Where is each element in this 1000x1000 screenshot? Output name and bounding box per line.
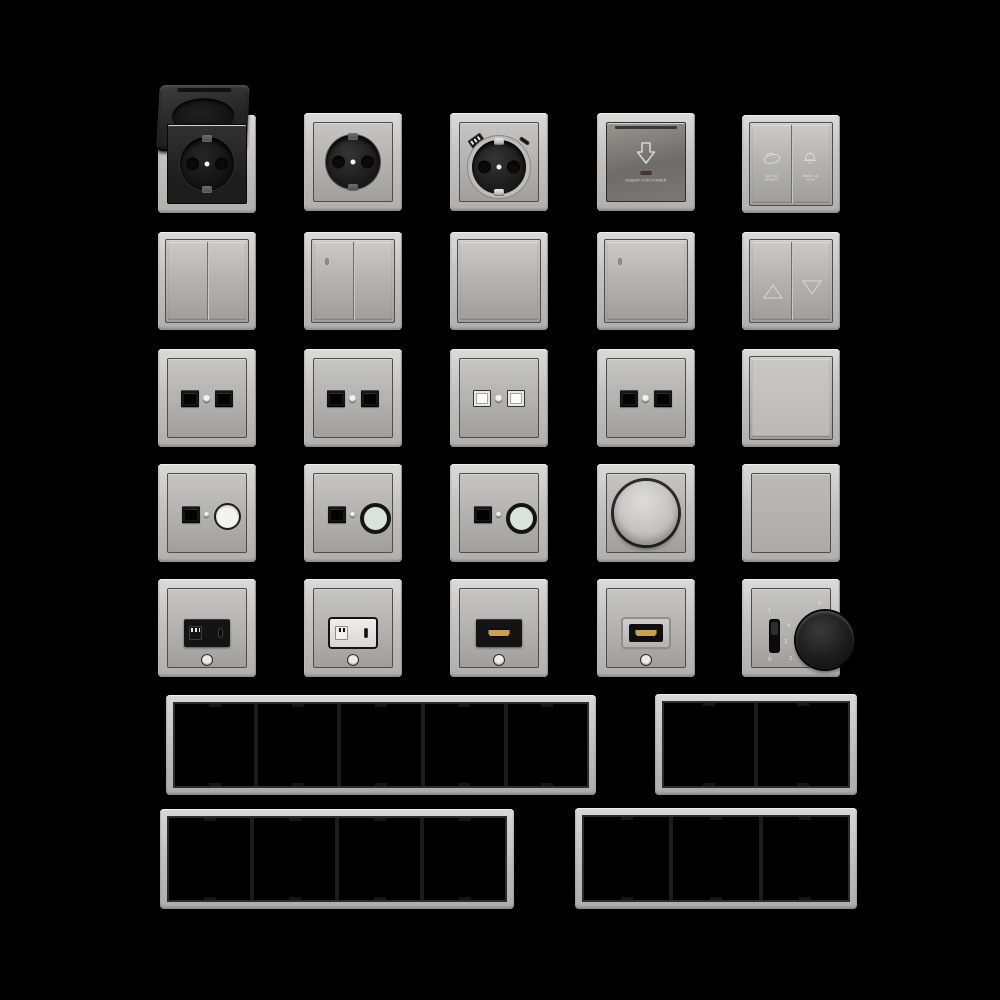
hotel-left-label: Do not disturb [759,174,783,181]
tile-socket-schuko-usb[interactable] [450,113,548,211]
rj45-port[interactable] [654,390,672,407]
schuko-recess [326,135,380,189]
hotel-switch-rockers[interactable]: Do not disturb Make up room [752,125,830,203]
tile-media-socket-coax-white[interactable] [158,464,256,562]
dimmer-knob[interactable] [614,481,678,545]
rocker[interactable] [460,242,538,320]
schuko-recess [180,137,234,191]
tile-switch-1gang-plain[interactable] [742,349,840,447]
tile-data-socket-2port-black-a[interactable] [158,349,256,447]
tile-media-socket-coax-dark-a[interactable] [304,464,402,562]
tile-switch-1gang[interactable] [450,232,548,330]
tile-thermostat-dial[interactable]: 1 0 6 4 3 2 ❄ [742,579,840,677]
service-bell-icon [801,148,819,166]
hdmi-module [623,619,669,647]
data-port[interactable] [474,506,492,523]
usb-a-icon[interactable] [335,626,348,640]
tile-socket-hinged-lid[interactable] [158,115,256,213]
double-rocker[interactable] [314,242,392,320]
screw-dot [641,655,651,665]
frame-2gang[interactable] [655,694,857,795]
tile-data-socket-2port-rj45[interactable] [597,349,695,447]
frame-opening [169,818,254,900]
frame-opening [763,817,848,900]
hotel-right-label: Make up room [798,174,822,181]
dial-mark-4: 4 [787,623,790,628]
data-port[interactable] [361,390,379,407]
dial-mark-3: 3 [784,639,787,644]
frame-opening [508,704,587,786]
dial-mark-2: 2 [789,656,792,661]
screw-dot [203,395,210,402]
tile-hdmi-socket-black[interactable] [450,579,548,677]
tile-hotel-service-switch[interactable]: Do not disturb Make up room [742,115,840,213]
thermostat-knob[interactable] [796,611,854,669]
schuko-recess [472,140,526,194]
led-indicator [618,258,622,265]
card-slot[interactable] [615,126,677,129]
tile-switch-2gang[interactable] [158,232,256,330]
triangle-down-icon [801,279,823,296]
frame-opening [254,818,339,900]
screw-dot [202,655,212,665]
do-not-disturb-icon [761,150,783,166]
screw-dot [494,655,504,665]
coax-connector[interactable] [214,503,241,530]
hdmi-port-icon[interactable] [634,629,658,638]
usb-c-icon[interactable] [519,136,530,146]
frame-3gang[interactable] [575,808,857,909]
frame-opening [424,818,505,900]
coax-connector[interactable] [360,503,391,534]
screw-dot [495,395,502,402]
screw-dot [204,512,209,517]
tile-media-socket-coax-dark-b[interactable] [450,464,548,562]
tile-usb-charger-white[interactable] [304,579,402,677]
thermostat-slider[interactable] [769,619,780,653]
frame-opening [584,817,673,900]
frame-opening [664,703,758,786]
data-port[interactable] [215,390,233,407]
tile-hdmi-socket-grey[interactable] [597,579,695,677]
coax-connector[interactable] [506,503,537,534]
tile-socket-schuko[interactable] [304,113,402,211]
screw-dot [642,395,649,402]
frame-opening [339,818,424,900]
data-port[interactable] [181,390,199,407]
tile-keycard-power-switch[interactable]: INSERT FOR POWER [597,113,695,211]
hdmi-port-icon[interactable] [487,629,511,638]
data-port-shuttered[interactable] [473,390,491,407]
slider-on-mark: 1 [768,608,771,613]
led-indicator [325,258,329,265]
arrow-down-icon [632,139,660,167]
blind-rockers[interactable] [752,242,830,320]
led-indicator [641,171,652,175]
data-port[interactable] [327,390,345,407]
frame-opening [341,704,424,786]
screw-dot [349,395,356,402]
rj45-port[interactable] [620,390,638,407]
tile-blank-cover[interactable] [742,464,840,562]
usb-c-icon[interactable] [364,628,368,638]
tile-blind-switch[interactable] [742,232,840,330]
frame-opening [758,703,848,786]
rocker[interactable] [752,359,830,437]
usb-a-icon[interactable] [189,626,202,640]
usb-c-icon[interactable] [218,628,223,638]
tile-rotary-dimmer[interactable] [597,464,695,562]
screw-dot [350,512,355,517]
frame-5gang[interactable] [166,695,596,795]
tile-switch-2gang-led[interactable] [304,232,402,330]
slider-off-mark: 0 [768,657,771,662]
frame-opening [673,817,762,900]
screw-dot [348,655,358,665]
hdmi-module [476,619,522,647]
frame-opening [258,704,341,786]
keycard-label: INSERT FOR POWER [622,179,670,183]
frame-4gang[interactable] [160,809,514,909]
tile-switch-1gang-led[interactable] [597,232,695,330]
rocker[interactable] [607,242,685,320]
frame-opening [425,704,508,786]
usb-module [184,619,230,647]
data-port-shuttered[interactable] [507,390,525,407]
tile-data-socket-2port-shuttered[interactable] [450,349,548,447]
data-port[interactable] [182,506,200,523]
frame-opening [175,704,258,786]
screw-dot [496,512,501,517]
double-rocker[interactable] [168,242,246,320]
tile-data-socket-2port-black-b[interactable] [304,349,402,447]
usb-module [330,619,376,647]
render-sheet: INSERT FOR POWER [0,0,1000,1000]
data-port[interactable] [328,506,346,523]
dial-mark-6: 6 [818,601,821,606]
tile-usb-charger-black[interactable] [158,579,256,677]
triangle-up-icon [762,283,784,300]
blank-plate [751,473,831,553]
